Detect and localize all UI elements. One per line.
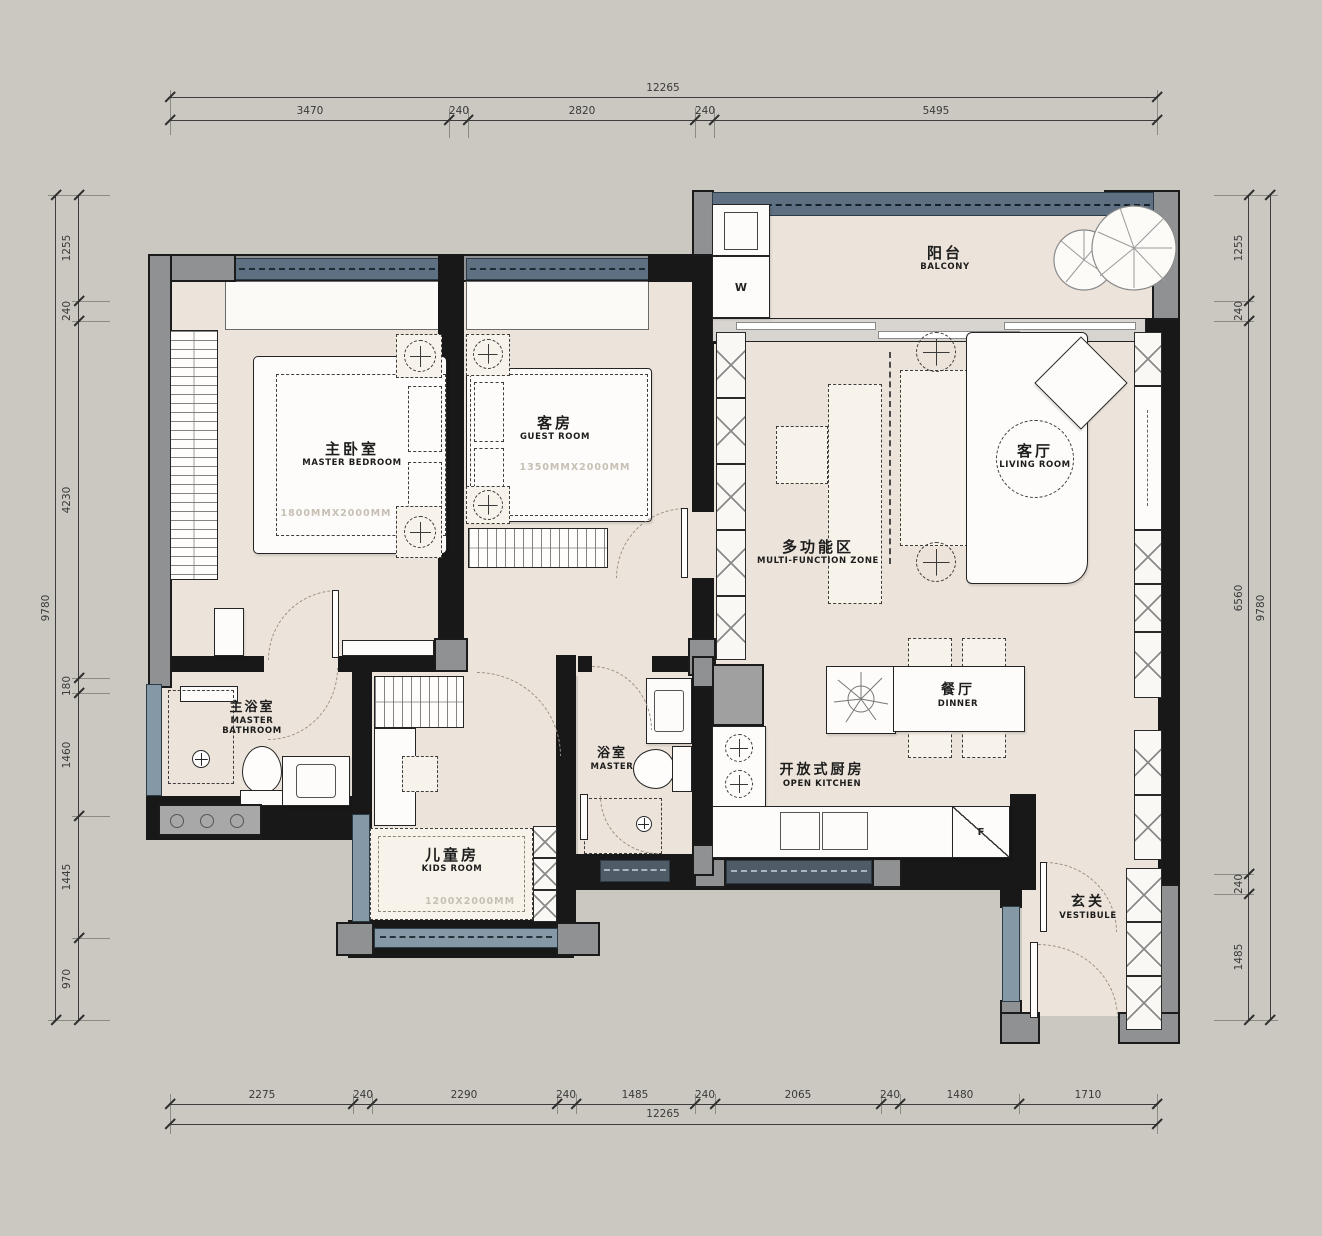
dim-seg: 240 bbox=[61, 287, 73, 335]
room-name-en: MASTER BEDROOM bbox=[272, 458, 432, 468]
dim-line bbox=[1270, 195, 1271, 1020]
dim-seg: 180 bbox=[61, 662, 73, 710]
range-hood bbox=[712, 664, 764, 726]
kitchen-sink bbox=[822, 812, 868, 850]
column bbox=[148, 254, 172, 688]
window-kitchen bbox=[726, 860, 872, 884]
radiator-knob bbox=[230, 814, 244, 828]
tv-wall-cabinet bbox=[1134, 332, 1162, 386]
dim-line bbox=[55, 195, 56, 1020]
room-name-zh: 客房 bbox=[475, 414, 635, 432]
washer-label: W bbox=[735, 281, 747, 294]
floor-plan-canvas: W F bbox=[0, 0, 1322, 1236]
tv-wall-cabinet bbox=[1134, 795, 1162, 860]
room-name-zh: 主卧室 bbox=[272, 440, 432, 458]
dim-line bbox=[170, 1104, 1157, 1105]
room-name-zh: 玄关 bbox=[1028, 894, 1148, 911]
basin bbox=[654, 690, 684, 732]
hall-cabinet bbox=[716, 398, 746, 464]
wall-segment bbox=[692, 254, 714, 512]
dim-seg: 2065 bbox=[768, 1089, 828, 1101]
label-multi-function: 多功能区 MULTI-FUNCTION ZONE bbox=[728, 538, 908, 566]
hall-cabinet bbox=[716, 596, 746, 660]
basin bbox=[296, 764, 336, 798]
lamp-icon bbox=[916, 542, 956, 582]
dresser bbox=[214, 608, 244, 656]
tv-wall-cabinet bbox=[1134, 530, 1162, 584]
room-name-en: VESTIBULE bbox=[1028, 911, 1148, 921]
wall-segment bbox=[352, 664, 372, 816]
tv-wall-cabinet bbox=[1134, 730, 1162, 795]
toilet-tank bbox=[672, 746, 692, 792]
lamp-icon bbox=[473, 490, 503, 520]
room-name-en: KIDS ROOM bbox=[372, 864, 532, 874]
dim-line bbox=[170, 120, 1157, 121]
dim-seg: 240 bbox=[333, 1089, 393, 1101]
room-name-zh: 多功能区 bbox=[728, 538, 908, 556]
dim-seg: 1710 bbox=[1058, 1089, 1118, 1101]
dim-total-top: 12265 bbox=[633, 82, 693, 94]
room-name-en: OPEN KITCHEN bbox=[742, 779, 902, 789]
room-name-zh: 餐厅 bbox=[898, 682, 1018, 699]
label-balcony: 阳台 BALCONY bbox=[865, 244, 1025, 272]
sliding-door-panel bbox=[1004, 322, 1136, 330]
room-name-en: BATHROOM bbox=[204, 726, 300, 736]
dim-seg: 240 bbox=[429, 105, 489, 117]
toilet bbox=[242, 746, 282, 794]
washing-machine: W bbox=[712, 256, 770, 318]
window-master-bath bbox=[146, 684, 162, 796]
column bbox=[692, 844, 714, 876]
lamp-icon bbox=[404, 340, 436, 372]
tv-wall-cabinet bbox=[1134, 632, 1162, 698]
dim-seg: 240 bbox=[675, 1089, 735, 1101]
room-name-en: BALCONY bbox=[865, 262, 1025, 272]
bench-guest bbox=[468, 528, 608, 568]
radiator-knob bbox=[200, 814, 214, 828]
column bbox=[336, 922, 374, 956]
sliding-door-panel bbox=[736, 322, 876, 330]
dim-seg: 1485 bbox=[605, 1089, 665, 1101]
tv-wall-cabinet bbox=[1134, 584, 1162, 632]
label-guest-room: 客房 GUEST ROOM bbox=[475, 414, 635, 442]
wall-segment bbox=[1010, 794, 1036, 858]
label-living-room: 客厅 LIVING ROOM bbox=[975, 442, 1095, 470]
kids-cabinet bbox=[533, 890, 557, 922]
table-living bbox=[900, 370, 968, 546]
door-leaf bbox=[332, 590, 339, 658]
hall-cabinet bbox=[716, 464, 746, 530]
lamp-icon bbox=[916, 332, 956, 372]
vestibule-cabinet bbox=[1126, 922, 1162, 976]
dim-seg: 1445 bbox=[61, 853, 73, 901]
fridge: F bbox=[952, 806, 1010, 858]
room-name-zh: 儿童房 bbox=[372, 846, 532, 864]
bed-size-kids: 1200X2000MM bbox=[410, 896, 530, 907]
tv-dash bbox=[1147, 410, 1148, 506]
towel-bar bbox=[580, 794, 588, 840]
fridge-label: F bbox=[978, 827, 985, 838]
plant-icon bbox=[830, 670, 894, 730]
kitchen-sink bbox=[780, 812, 820, 850]
vestibule-cabinet bbox=[1126, 976, 1162, 1030]
room-name-en: MASTER bbox=[572, 762, 652, 772]
dim-seg: 240 bbox=[860, 1089, 920, 1101]
bed-size-master: 1800MMX2000MM bbox=[276, 508, 396, 519]
column bbox=[434, 638, 468, 672]
door-leaf bbox=[1030, 942, 1038, 1018]
window-bathroom bbox=[600, 860, 670, 882]
shower-head-icon bbox=[192, 750, 210, 768]
dim-seg: 1255 bbox=[61, 224, 73, 272]
plant-icon bbox=[1048, 196, 1178, 308]
lamp-icon bbox=[473, 339, 503, 369]
window-sill-master bbox=[225, 281, 439, 330]
wall-segment bbox=[648, 254, 694, 282]
window-dash bbox=[380, 936, 552, 938]
dim-seg: 1255 bbox=[1233, 224, 1245, 272]
dim-seg: 5495 bbox=[906, 105, 966, 117]
dim-seg: 1485 bbox=[1233, 933, 1245, 981]
screen-divider bbox=[889, 352, 891, 564]
dim-seg: 2820 bbox=[552, 105, 612, 117]
column bbox=[556, 922, 600, 956]
dim-seg: 1460 bbox=[61, 731, 73, 779]
label-kids-room: 儿童房 KIDS ROOM bbox=[372, 846, 532, 874]
wardrobe-master bbox=[170, 330, 218, 580]
dim-seg: 3470 bbox=[280, 105, 340, 117]
dim-seg: 2275 bbox=[232, 1089, 292, 1101]
window-dash bbox=[731, 870, 867, 872]
room-name-zh: 阳台 bbox=[865, 244, 1025, 262]
room-name-en: GUEST ROOM bbox=[475, 432, 635, 442]
hall-cabinet bbox=[716, 332, 746, 398]
room-name-en: LIVING ROOM bbox=[975, 460, 1095, 470]
dim-seg: 240 bbox=[675, 105, 735, 117]
kids-chair bbox=[402, 756, 438, 792]
column bbox=[692, 656, 714, 688]
burner-icon bbox=[725, 734, 753, 762]
kids-cabinet bbox=[533, 858, 557, 890]
window-kids-side bbox=[352, 814, 370, 922]
wall-segment bbox=[578, 656, 592, 672]
dim-line bbox=[170, 97, 1157, 98]
room-name-zh: 开放式厨房 bbox=[742, 762, 902, 779]
window-dash bbox=[229, 268, 435, 270]
label-kitchen: 开放式厨房 OPEN KITCHEN bbox=[742, 762, 902, 789]
room-name-en: DINNER bbox=[898, 699, 1018, 709]
room-name-zh: 主浴室 bbox=[204, 700, 300, 716]
label-dining: 餐厅 DINNER bbox=[898, 682, 1018, 709]
dim-seg: 240 bbox=[1233, 860, 1245, 908]
room-name-zh: 客厅 bbox=[975, 442, 1095, 460]
lamp-icon bbox=[404, 516, 436, 548]
bed-size-guest: 1350MMX2000MM bbox=[505, 462, 645, 473]
dim-total-bottom: 12265 bbox=[633, 1108, 693, 1120]
dim-seg: 240 bbox=[1233, 287, 1245, 335]
dim-seg: 6560 bbox=[1233, 574, 1245, 622]
label-master-bathroom: 主浴室 MASTER BATHROOM bbox=[204, 700, 300, 736]
hall-cabinet-small bbox=[342, 640, 434, 656]
window-dash bbox=[604, 869, 666, 871]
label-bathroom: 浴室 MASTER bbox=[572, 746, 652, 772]
dim-seg: 2290 bbox=[434, 1089, 494, 1101]
door-leaf bbox=[681, 508, 688, 578]
dim-seg: 240 bbox=[536, 1089, 596, 1101]
label-vestibule: 玄关 VESTIBULE bbox=[1028, 894, 1148, 921]
dim-total-right: 9780 bbox=[1255, 584, 1267, 632]
label-master-bedroom: 主卧室 MASTER BEDROOM bbox=[272, 440, 432, 468]
desk-multifunction bbox=[828, 384, 882, 604]
window-vestibule bbox=[1002, 906, 1020, 1002]
wardrobe-kids bbox=[374, 676, 464, 728]
window-sill-guest bbox=[466, 281, 649, 330]
chair-multifunction bbox=[776, 426, 828, 484]
cabinet-door bbox=[724, 212, 758, 250]
room-name-en: MASTER bbox=[204, 716, 300, 726]
wall-segment bbox=[556, 655, 576, 955]
kids-cabinet bbox=[533, 826, 557, 858]
dim-seg: 970 bbox=[61, 955, 73, 1003]
dim-seg: 4230 bbox=[61, 476, 73, 524]
window-kids-bottom bbox=[374, 928, 558, 948]
tv-unit bbox=[1134, 386, 1162, 530]
dim-total-left: 9780 bbox=[40, 584, 52, 632]
column bbox=[872, 858, 902, 888]
dim-line bbox=[170, 1124, 1157, 1125]
wall-segment bbox=[1000, 854, 1022, 908]
window-dash bbox=[470, 268, 645, 270]
column bbox=[692, 190, 714, 256]
radiator-knob bbox=[170, 814, 184, 828]
dim-seg: 1480 bbox=[930, 1089, 990, 1101]
room-name-en: MULTI-FUNCTION ZONE bbox=[728, 556, 908, 566]
room-name-zh: 浴室 bbox=[572, 746, 652, 762]
